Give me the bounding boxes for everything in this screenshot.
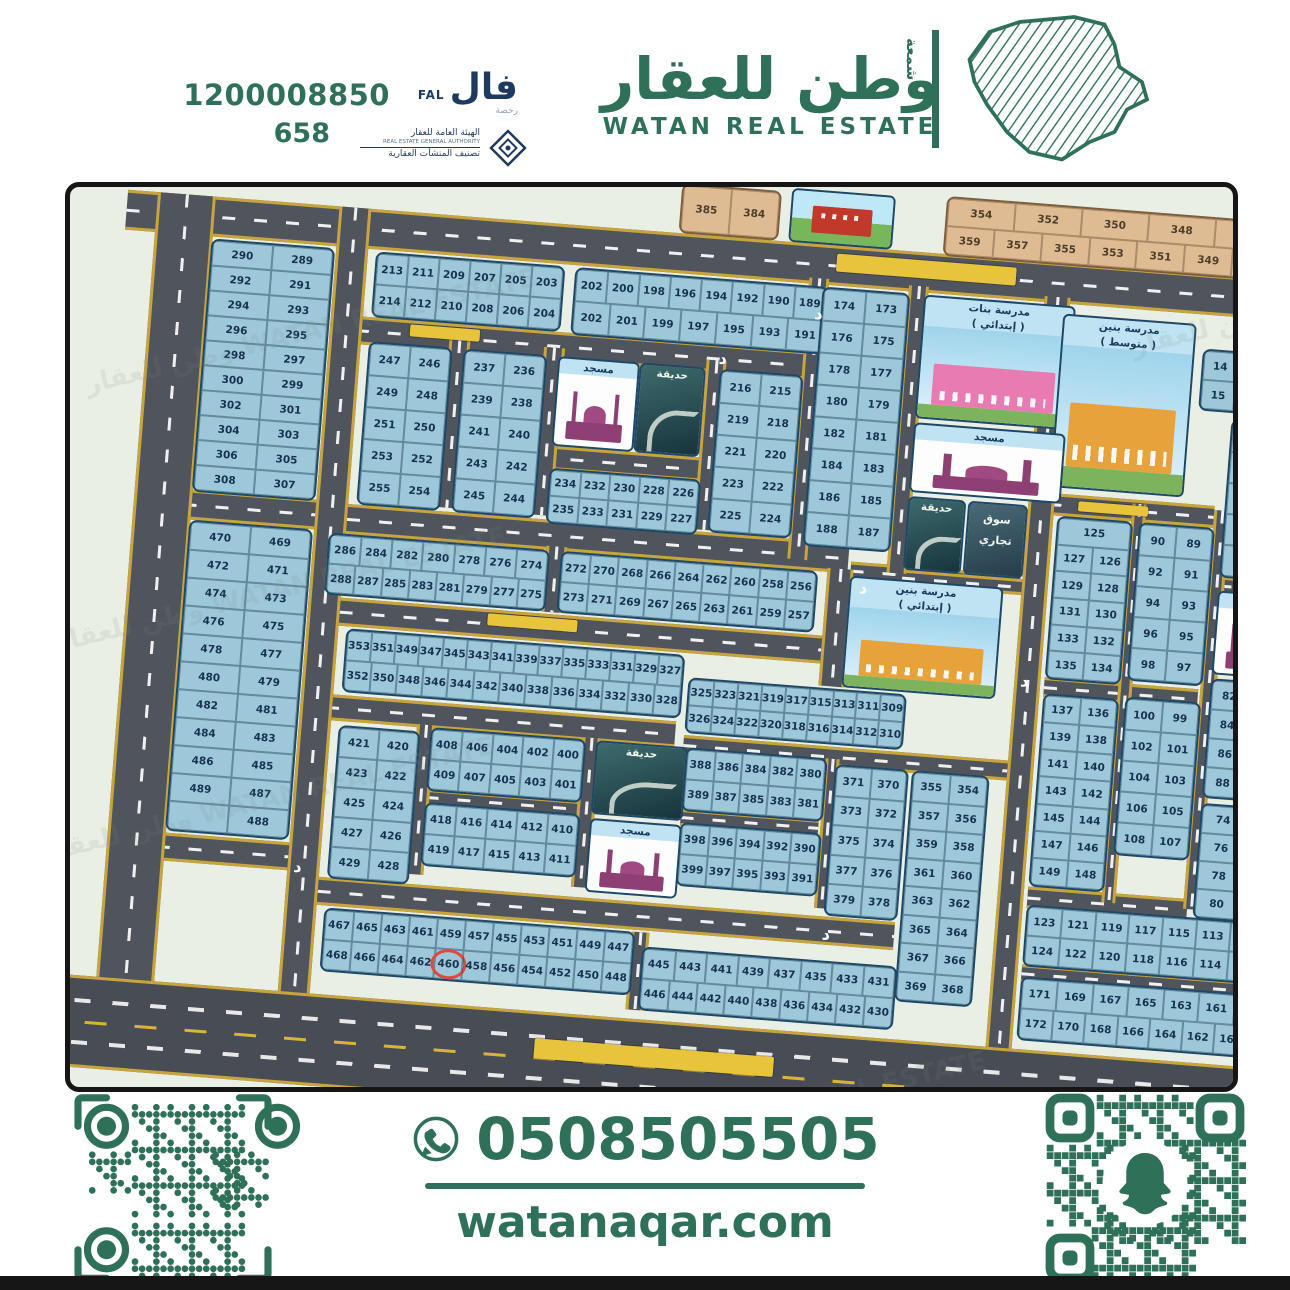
plot-242: 242: [495, 450, 537, 485]
plot-436: 436: [779, 989, 809, 1021]
plot-178: 178: [817, 352, 861, 387]
plot-426: 426: [370, 820, 411, 853]
mosque-icon: [1214, 607, 1238, 678]
plot-433: 433: [830, 963, 864, 995]
plot-84: 84: [1208, 709, 1238, 741]
plot-80: 80: [1194, 889, 1238, 920]
plot-124: 124: [1024, 936, 1060, 968]
plot-359: 359: [907, 829, 946, 860]
plot-331: 331: [609, 651, 635, 683]
plot-235: 235: [547, 496, 579, 524]
plot-435: 435: [799, 961, 833, 993]
plot-100: 100: [1125, 699, 1163, 733]
plot-438: 438: [751, 987, 781, 1019]
plot-430: 430: [863, 996, 893, 1028]
plot-126: 126: [1091, 547, 1129, 576]
plot-202: 202: [572, 301, 610, 336]
plot-224: 224: [749, 502, 791, 537]
plot-233: 233: [577, 498, 609, 526]
plot-417: 417: [453, 836, 486, 868]
plot-338: 338: [524, 674, 552, 706]
plot-416: 416: [455, 806, 488, 838]
map-block-F: 237236239238241240243242245244: [451, 349, 548, 519]
plot-452: 452: [545, 957, 575, 989]
map-block-R64: 64636665686770697271: [1219, 419, 1238, 585]
plot-188: 188: [804, 512, 848, 547]
plot-230: 230: [608, 474, 640, 502]
plot-326: 326: [686, 705, 712, 733]
plot-437: 437: [767, 958, 801, 990]
plot-347: 347: [1231, 249, 1238, 281]
plot-97: 97: [1165, 651, 1203, 685]
plot-251: 251: [363, 407, 405, 442]
plot-99: 99: [1161, 702, 1199, 736]
fal-license-logo: FAL فال رخصة: [398, 70, 518, 116]
plot-352: 352: [344, 660, 372, 692]
authority-line3: تصنيف المنشآت العقارية: [360, 147, 480, 160]
plot-92: 92: [1136, 555, 1174, 589]
plot-15: 15: [1200, 380, 1236, 412]
mosque-icon: [911, 439, 1063, 502]
plot-243: 243: [456, 446, 498, 481]
plot-247: 247: [368, 343, 410, 378]
park-icon: [635, 379, 702, 455]
plot-241: 241: [458, 414, 500, 449]
plot-329: 329: [633, 653, 659, 685]
plot-194: 194: [699, 279, 733, 313]
plot-202: 202: [575, 269, 609, 303]
plot-459: 459: [436, 918, 466, 950]
plot-148: 148: [1066, 860, 1104, 890]
plot-364: 364: [937, 917, 976, 948]
plot-431: 431: [862, 966, 896, 998]
plot-74: 74: [1201, 805, 1238, 836]
plot-324: 324: [710, 707, 736, 735]
plot-400: 400: [552, 739, 585, 771]
plot-379: 379: [826, 884, 863, 916]
plot-413: 413: [513, 841, 546, 873]
facility-mosqueC: مسجد: [585, 818, 683, 899]
plot-468: 468: [322, 939, 352, 971]
plot-90: 90: [1139, 524, 1177, 558]
plot-216: 216: [719, 371, 761, 406]
plot-259: 259: [755, 597, 785, 628]
facility-bldg: [788, 188, 896, 250]
plot-460: 460: [433, 948, 463, 980]
plot-200: 200: [606, 272, 640, 306]
plot-229: 229: [636, 503, 668, 531]
plot-386: 386: [713, 752, 743, 784]
plot-355: 355: [912, 772, 951, 803]
plot-198: 198: [637, 274, 671, 308]
plot-136: 136: [1079, 698, 1117, 728]
plot-449: 449: [575, 929, 605, 961]
plot-312: 312: [853, 718, 879, 746]
plot-72: 72: [1221, 545, 1238, 579]
map-block-Q: 418416414412410419417415413411: [420, 802, 581, 878]
plot-384: 384: [728, 189, 779, 239]
plot-336: 336: [550, 676, 578, 708]
plot-104: 104: [1120, 760, 1158, 794]
plot-327: 327: [657, 655, 683, 687]
map-block-E: 247246249248251250253252255254: [356, 341, 453, 511]
plot-130: 130: [1087, 600, 1125, 629]
map-block-S: 388386384382380389387385383381: [681, 747, 828, 822]
plot-182: 182: [812, 416, 856, 451]
map-block-tan1: 385384: [678, 183, 782, 241]
plot-274: 274: [515, 549, 548, 580]
plot-371: 371: [835, 766, 872, 798]
plot-439: 439: [736, 956, 770, 988]
map-block-O: 421420423422425424427426429428: [327, 725, 421, 885]
plot-12: 12: [1236, 353, 1238, 385]
plot-163: 163: [1162, 989, 1200, 1022]
header-contact-numbers: 1200008850 658: [150, 78, 390, 149]
plot-121: 121: [1060, 909, 1096, 941]
plot-464: 464: [377, 944, 407, 976]
plot-103: 103: [1156, 763, 1194, 797]
license-number: 658: [150, 118, 390, 149]
plot-320: 320: [758, 711, 784, 739]
plot-322: 322: [734, 709, 760, 737]
plot-372: 372: [867, 798, 904, 830]
plot-111: 111: [1228, 922, 1238, 954]
plot-250: 250: [403, 410, 445, 445]
plot-246: 246: [408, 346, 450, 381]
plot-105: 105: [1153, 794, 1191, 828]
plot-101: 101: [1158, 732, 1196, 766]
plot-91: 91: [1172, 558, 1210, 592]
plot-197: 197: [679, 310, 717, 345]
plot-88: 88: [1204, 767, 1238, 799]
plot-393: 393: [760, 861, 790, 893]
plot-391: 391: [787, 863, 817, 895]
plot-180: 180: [815, 384, 859, 419]
plot-184: 184: [809, 448, 853, 483]
street-letter-dal: د: [814, 304, 824, 324]
plot-127: 127: [1055, 544, 1093, 573]
plot-138: 138: [1077, 725, 1115, 755]
plot-330: 330: [627, 683, 655, 715]
plot-359: 359: [945, 226, 995, 258]
plot-418: 418: [425, 804, 458, 836]
footer-website[interactable]: watanaqar.com: [395, 1197, 895, 1248]
plot-349: 349: [1183, 245, 1233, 277]
street-letter-dal: د: [858, 578, 868, 598]
plot-270: 270: [589, 555, 619, 586]
plot-319: 319: [760, 685, 786, 713]
plot-160: 160: [1213, 1024, 1238, 1056]
plot-397: 397: [705, 856, 735, 888]
plot-94: 94: [1134, 586, 1172, 620]
plot-317: 317: [784, 687, 810, 715]
plot-369: 369: [896, 971, 935, 1002]
plot-107: 107: [1151, 825, 1189, 859]
plot-168: 168: [1083, 1013, 1118, 1045]
plot-253: 253: [361, 439, 403, 474]
plot-337: 337: [537, 645, 563, 677]
plot-131: 131: [1051, 598, 1089, 627]
plot-159: 159: [1233, 995, 1238, 1028]
plot-187: 187: [846, 515, 890, 550]
plot-231: 231: [606, 500, 638, 528]
plot-66: 66: [1229, 452, 1238, 486]
plot-277: 277: [489, 576, 518, 607]
plot-429: 429: [329, 847, 370, 880]
plot-368: 368: [933, 974, 972, 1005]
plot-143: 143: [1037, 776, 1075, 806]
plot-128: 128: [1089, 574, 1127, 603]
map-block-R1: 90899291949396959897: [1127, 522, 1215, 686]
plot-399: 399: [677, 854, 707, 886]
plot-132: 132: [1085, 627, 1123, 656]
plot-118: 118: [1125, 943, 1161, 975]
plot-113: 113: [1195, 920, 1231, 952]
authority-line2: REAL ESTATE GENERAL AUTHORITY: [360, 139, 480, 146]
plot-265: 265: [671, 591, 701, 622]
plot-106: 106: [1118, 791, 1156, 825]
plot-248: 248: [406, 378, 448, 413]
plot-411: 411: [543, 844, 576, 876]
plot-414: 414: [485, 809, 518, 841]
plot-147: 147: [1033, 831, 1071, 861]
plot-183: 183: [851, 451, 895, 486]
plot-358: 358: [944, 832, 983, 863]
plot-314: 314: [830, 717, 856, 745]
plot-117: 117: [1127, 915, 1163, 947]
plot-361: 361: [905, 857, 944, 888]
school-icon: [843, 607, 999, 697]
plot-353: 353: [1088, 237, 1138, 269]
plot-193: 193: [750, 315, 788, 350]
plot-185: 185: [849, 483, 893, 518]
map-block-CC: 4454434414394374354334314464444424404384…: [637, 946, 897, 1030]
footer-phone[interactable]: 0508505505: [476, 1105, 880, 1173]
plot-441: 441: [705, 953, 739, 985]
plot-309: 309: [879, 694, 905, 722]
plot-134: 134: [1083, 654, 1121, 683]
plot-135: 135: [1047, 651, 1085, 680]
plot-79: 79: [1236, 892, 1238, 923]
plot-112: 112: [1226, 951, 1238, 983]
plot-220: 220: [754, 438, 796, 473]
plot-353: 353: [346, 630, 372, 662]
plot-96: 96: [1131, 617, 1169, 651]
plot-375: 375: [830, 825, 867, 857]
plot-443: 443: [673, 951, 707, 983]
plot-68: 68: [1226, 483, 1238, 517]
plot-174: 174: [822, 289, 866, 324]
poster-page: { "header": { "phone": "1200008850", "li…: [0, 0, 1290, 1290]
facility-mosque_tl: مسجد: [551, 356, 640, 452]
plot-260: 260: [730, 566, 760, 597]
plot-268: 268: [617, 557, 647, 588]
plot-355: 355: [1040, 234, 1090, 266]
building-icon: [790, 190, 894, 248]
qr-code-snapchat[interactable]: [1040, 1088, 1250, 1288]
plot-387: 387: [711, 781, 741, 813]
plot-76: 76: [1199, 833, 1238, 864]
plot-211: 211: [406, 256, 439, 289]
plot-427: 427: [331, 817, 372, 850]
plot-454: 454: [517, 955, 547, 987]
plot-313: 313: [832, 691, 858, 719]
plot-164: 164: [1148, 1018, 1183, 1050]
plot-240: 240: [498, 418, 540, 453]
plot-424: 424: [372, 790, 413, 823]
plot-120: 120: [1091, 941, 1127, 973]
plot-321: 321: [736, 683, 762, 711]
school-building-icon: [1065, 402, 1176, 475]
plot-257: 257: [784, 600, 814, 631]
plot-347: 347: [418, 636, 444, 668]
rega-diamond-icon: [488, 128, 528, 168]
plot-370: 370: [870, 769, 907, 801]
plot-384: 384: [741, 754, 771, 786]
plot-139: 139: [1041, 722, 1079, 752]
plot-123: 123: [1026, 907, 1062, 939]
plot-116: 116: [1159, 946, 1195, 978]
plot-385: 385: [681, 185, 732, 235]
plot-366: 366: [935, 946, 974, 977]
plot-463: 463: [380, 914, 410, 946]
plot-190: 190: [762, 284, 796, 318]
plot-349: 349: [394, 634, 420, 666]
market-icon: [965, 545, 1023, 577]
park-icon: [905, 513, 963, 572]
plot-223: 223: [712, 467, 754, 502]
plot-258: 258: [758, 568, 788, 599]
plot-351: 351: [370, 632, 396, 664]
building-icon: [811, 205, 873, 237]
plot-351: 351: [1136, 241, 1186, 273]
plot-186: 186: [807, 480, 851, 515]
plot-239: 239: [461, 383, 503, 418]
plot-165: 165: [1127, 987, 1165, 1020]
plot-93: 93: [1170, 589, 1208, 623]
rega-authority-text: الهيئة العامة للعقار REAL ESTATE GENERAL…: [360, 128, 480, 160]
plot-342: 342: [472, 670, 500, 702]
plot-345: 345: [442, 638, 468, 670]
plot-228: 228: [638, 477, 670, 505]
plot-310: 310: [877, 720, 903, 748]
facility-girls: مدرسة بنات( إبتدائي ): [915, 295, 1076, 431]
plot-415: 415: [483, 839, 516, 871]
plot-412: 412: [515, 811, 548, 843]
plot-234: 234: [549, 470, 581, 498]
plot-108: 108: [1115, 822, 1153, 856]
plot-341: 341: [489, 642, 515, 674]
plot-140: 140: [1075, 752, 1113, 782]
map-block-H: 216215219218221220223222225224: [707, 369, 804, 539]
plot-195: 195: [715, 312, 753, 347]
authority-line1: الهيئة العامة للعقار: [360, 128, 480, 139]
map-block-G: 234232230228226235233231229227: [545, 468, 701, 536]
plot-64: 64: [1231, 421, 1238, 455]
plot-272: 272: [561, 553, 591, 584]
plot-365: 365: [900, 914, 939, 945]
plot-232: 232: [579, 472, 611, 500]
plot-440: 440: [723, 985, 753, 1017]
plot-339: 339: [513, 644, 539, 676]
plot-256: 256: [786, 571, 816, 602]
map-block-V: 3553543573563593583613603633623653643673…: [894, 770, 990, 1007]
plot-380: 380: [796, 758, 826, 790]
plot-14: 14: [1203, 351, 1238, 383]
plot-402: 402: [521, 736, 554, 768]
plot-421: 421: [338, 727, 379, 760]
plot-398: 398: [680, 824, 710, 856]
plot-447: 447: [603, 931, 633, 963]
plot-388: 388: [686, 749, 716, 781]
plot-377: 377: [828, 855, 865, 887]
plot-357: 357: [992, 230, 1042, 262]
plot-354: 354: [949, 775, 988, 806]
plot-273: 273: [558, 582, 588, 613]
plot-394: 394: [735, 828, 765, 860]
plot-222: 222: [752, 470, 794, 505]
plot-175: 175: [861, 324, 905, 359]
plot-255: 255: [358, 471, 400, 506]
plot-95: 95: [1167, 620, 1205, 654]
plot-457: 457: [464, 920, 494, 952]
map-block-W: 1371361391381411401431421451441471461491…: [1028, 693, 1119, 892]
plot-335: 335: [561, 647, 587, 679]
map-block-U: 371370373372375374377376379378: [823, 764, 909, 921]
plot-395: 395: [732, 858, 762, 890]
plot-405: 405: [489, 764, 522, 796]
plot-237: 237: [463, 351, 505, 386]
plot-226: 226: [667, 479, 699, 507]
qr-code-left[interactable]: [72, 1093, 312, 1283]
plot-466: 466: [350, 942, 380, 974]
plot-244: 244: [493, 481, 535, 516]
plot-404: 404: [491, 734, 524, 766]
plot-344: 344: [447, 668, 475, 700]
plot-86: 86: [1206, 738, 1238, 770]
plot-367: 367: [898, 943, 937, 974]
plot-448: 448: [601, 961, 631, 993]
plot-373: 373: [832, 796, 869, 828]
plot-149: 149: [1030, 858, 1068, 888]
plot-221: 221: [714, 435, 756, 470]
plot-381: 381: [793, 788, 823, 820]
plot-455: 455: [491, 923, 521, 955]
map-block-K: 125127126129128131130133132135134: [1045, 516, 1134, 685]
plot-215: 215: [759, 374, 801, 409]
plot-254: 254: [398, 474, 440, 509]
plot-137: 137: [1043, 695, 1081, 725]
plot-102: 102: [1122, 730, 1160, 764]
map-block-T: 398396394392390399397395393391: [675, 822, 822, 897]
plot-115: 115: [1161, 917, 1197, 949]
plot-89: 89: [1175, 527, 1213, 561]
facility-park_g: حديقة: [903, 496, 967, 574]
plot-166: 166: [1116, 1016, 1151, 1048]
plot-467: 467: [324, 909, 354, 941]
plot-249: 249: [366, 375, 408, 410]
plot-318: 318: [782, 713, 808, 741]
plot-444: 444: [667, 981, 697, 1013]
plot-204: 204: [528, 297, 561, 330]
plot-264: 264: [673, 562, 703, 593]
plot-434: 434: [807, 992, 837, 1024]
street-letter-dal: د: [1020, 671, 1030, 691]
plot-225: 225: [709, 498, 751, 533]
plot-340: 340: [498, 672, 526, 704]
plot-442: 442: [695, 983, 725, 1015]
plot-461: 461: [408, 916, 438, 948]
